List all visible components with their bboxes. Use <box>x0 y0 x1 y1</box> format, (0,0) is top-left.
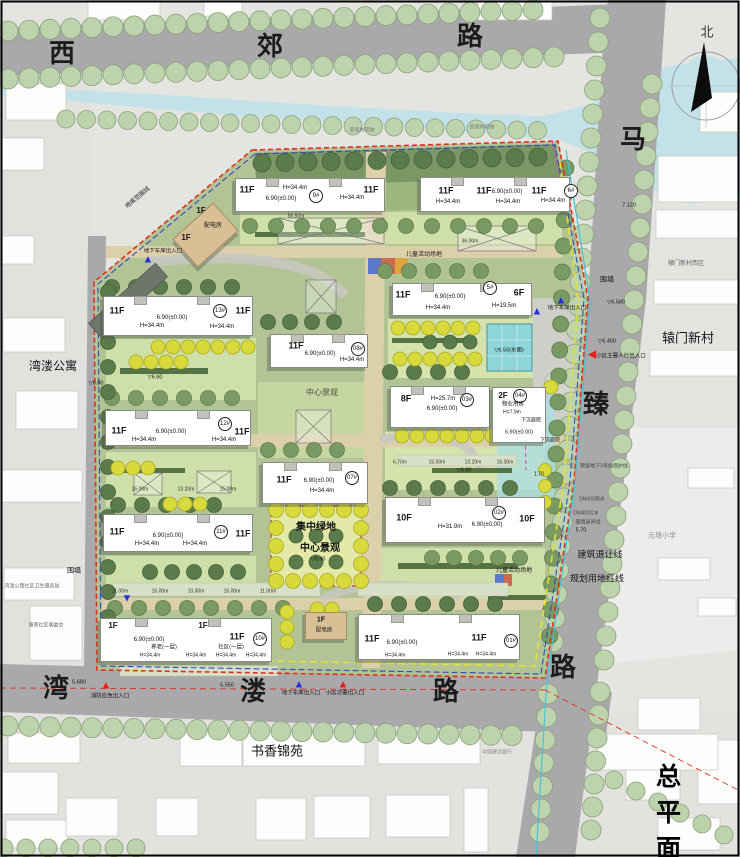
building-label: H=34.4m <box>340 195 365 201</box>
building-label: 08# <box>351 342 365 356</box>
building-label: 11F <box>531 187 546 196</box>
building-label: 13# <box>213 304 227 318</box>
road-name-char: 臻 <box>583 391 609 417</box>
building-number-badge: 03# <box>460 393 474 407</box>
building-label: H=34.4m <box>426 305 451 311</box>
roof-core <box>284 462 297 471</box>
dimension-label: 15.00m <box>497 461 514 466</box>
building-number-badge: 6# <box>564 184 578 198</box>
entrance-marker: ▼ <box>122 594 133 605</box>
map-label: 书香锦苑 <box>251 745 303 758</box>
building-label: H=34.4m <box>476 653 496 658</box>
roof-core <box>514 177 527 186</box>
building-number-badge: 5# <box>483 281 497 295</box>
building-label: H=34.4m <box>496 199 521 205</box>
map-label: 辕门新村 <box>662 332 714 345</box>
building-number-badge: 02# <box>492 506 506 520</box>
map-label: 景观构筑物 <box>469 126 494 131</box>
map-label: 塘南社区居委会 <box>28 624 63 629</box>
building-label: 5# <box>483 281 497 295</box>
building-label: H=25.7m <box>431 396 456 402</box>
map-label: 地库范围线 <box>125 186 152 210</box>
building-label: 12# <box>218 417 232 431</box>
road-name-char: 马 <box>620 126 646 152</box>
dimension-label: 15.00m <box>132 488 149 493</box>
elevation-label: ▽6.400 <box>598 339 616 345</box>
dimension-label: 36.00m <box>462 240 479 245</box>
building-label: H=34.4m <box>140 654 160 659</box>
map-label: 建筑退让线 <box>577 551 622 560</box>
entrance-label: 小区主要人行出入口 <box>596 354 646 360</box>
road-name-char: 湾 <box>43 675 69 701</box>
building-label: H=34.4m <box>186 654 206 659</box>
building-number-badge: 9# <box>309 189 323 203</box>
road-name-char: 溇 <box>240 678 266 704</box>
map-label: 1F <box>181 234 190 242</box>
building-label: 8F <box>401 395 412 404</box>
drawing-title: 总平面图 <box>656 757 712 857</box>
building-label: 1F <box>196 207 205 215</box>
entrance-marker: ◀ <box>588 350 596 361</box>
building-number-badge: 13# <box>213 304 227 318</box>
building-number-badge: 12# <box>218 417 232 431</box>
building-label: 11# <box>214 525 228 539</box>
roof-core <box>135 618 148 627</box>
building-label: 11F <box>235 307 250 316</box>
entrance-label: 地下车库出入口 <box>548 306 587 312</box>
building-label: 11F <box>364 635 379 644</box>
roof-core <box>391 614 404 623</box>
building-label: 6.90(±0.00) <box>266 196 297 202</box>
elevation-label: ▽6.60 <box>148 375 163 381</box>
map-label: 中心景观 <box>306 389 338 397</box>
map-label: 围墙 <box>600 277 614 284</box>
building-number-badge: 08# <box>351 342 365 356</box>
building-label: 6.90(±0.00) <box>492 189 523 195</box>
roof-core <box>208 618 221 627</box>
building-label: 6.90(±0.00) <box>505 430 533 436</box>
building-label: 11F <box>363 186 378 195</box>
building-label: 01# <box>504 634 518 648</box>
elevation-label: ▽6.60 <box>311 557 326 563</box>
building-label: 10F <box>519 515 535 524</box>
building-label: 1.70 <box>534 473 544 478</box>
map-label: 辕门新村西区 <box>668 261 704 267</box>
map-label: 中国建设银行 <box>482 751 512 756</box>
building-label: 11F <box>476 187 491 196</box>
roof-core <box>485 497 498 506</box>
building-label: 社区(一层) <box>218 645 244 651</box>
building-label: H=34.4m <box>216 654 236 659</box>
building-label: 6# <box>564 184 578 198</box>
dimension-label: 10.30m <box>188 590 205 595</box>
elevation-label: ▽6.50(水面) <box>494 348 524 354</box>
building-label: H=34.4m <box>132 437 157 443</box>
map-label: DN400雨水 <box>579 498 605 503</box>
building-label: 11F <box>229 633 244 642</box>
roof-core <box>332 334 345 343</box>
entrance-label: 小区次要出入口 <box>326 691 365 697</box>
building-label: H=31.9m <box>438 524 463 530</box>
elevation-label: ▽6.580 <box>607 300 625 306</box>
building-label: 6.90(±0.00) <box>305 351 336 357</box>
building-label: H=34.4m <box>246 654 266 659</box>
building-label: 6.90(±0.00) <box>427 406 458 412</box>
roof-core <box>411 386 424 395</box>
map-label: DN400污水 <box>573 512 599 517</box>
map-label: 湾溇公寓社区卫生服务站 <box>4 585 59 590</box>
building-label: 11F <box>276 476 291 485</box>
building-label: H=34.4m <box>140 323 165 329</box>
building-label: 6.90(±0.00) <box>387 640 418 646</box>
map-label: 湾溇公寓 <box>29 360 77 372</box>
entrance-marker: ▲ <box>338 680 349 691</box>
building-label: 11F <box>239 186 254 195</box>
roof-core <box>459 614 472 623</box>
elevation-label: 5.70 <box>576 528 587 534</box>
building-label: 03# <box>460 393 474 407</box>
dimension-label: 11.00m <box>260 590 276 595</box>
map-label: 元培小学 <box>648 533 676 540</box>
map-label: 围墙退界线 <box>575 521 600 526</box>
entrance-marker: ▲ <box>532 307 543 318</box>
building-label: 配电房 <box>316 628 333 634</box>
entrance-marker: ▲ <box>294 680 305 691</box>
roof-core <box>266 178 279 187</box>
building-label: 下沉庭院 <box>540 439 560 444</box>
north-label: 北 <box>700 22 713 41</box>
map-label: 围墙 <box>67 568 81 575</box>
dimension-label: 15.00m <box>224 590 241 595</box>
building-label: 6.90(±0.00) <box>134 637 165 643</box>
map-label: 预留地下3号线保护线 <box>580 465 628 470</box>
elevation-label: ▽6.60 <box>457 468 472 474</box>
building-label: 6.90(±0.00) <box>304 478 335 484</box>
building-label: 1F <box>108 622 117 630</box>
building-label: 11F <box>395 291 410 300</box>
building-label: H=34.4m <box>210 324 235 330</box>
building-label: 物业用房 <box>502 402 524 408</box>
building-label: H=34.4m <box>340 357 365 363</box>
road-name-char: 路 <box>550 654 576 680</box>
building-label: 11F <box>111 427 126 436</box>
building-number-badge: 11# <box>214 525 228 539</box>
building-label: 1F <box>198 622 207 630</box>
building-label: 6F <box>514 289 525 298</box>
building-label: 11F <box>288 342 303 351</box>
building-label: H=34.4m <box>283 185 308 191</box>
roof-core <box>197 514 210 523</box>
annotation-layer: 西郊路马臻路湾溇路11F6.90(±0.00)H=34.4m9#H=34.4m1… <box>0 0 740 857</box>
building-label: H=34.4m <box>448 653 468 658</box>
road-name-char: 西 <box>49 40 75 66</box>
dimension-label: 6.70m <box>393 461 407 466</box>
building-number-badge: 01# <box>504 634 518 648</box>
building-substation-s <box>305 612 347 640</box>
elevation-label: 7.120 <box>622 203 636 209</box>
building-label: 2F <box>498 392 507 400</box>
building-label: 6.90(±0.00) <box>157 315 188 321</box>
building-label: H=7.9m <box>503 411 521 416</box>
roof-core <box>197 296 210 305</box>
entrance-marker: ▲ <box>101 681 112 692</box>
building-label: 6.90(±0.00) <box>153 533 184 539</box>
building-label: 1F <box>317 617 325 624</box>
building-label: 11F <box>234 428 249 437</box>
building-label: H=34.4m <box>541 198 566 204</box>
dimension-label: 15.00m <box>220 488 237 493</box>
building-label: 9# <box>309 189 323 203</box>
elevation-label: ▽6.00 <box>89 381 104 387</box>
building-label: 11F <box>235 530 250 539</box>
building-label: 11F <box>109 307 124 316</box>
roof-core <box>134 514 147 523</box>
building-label: H=34.4m <box>183 541 208 547</box>
road-name-char: 郊 <box>257 33 283 59</box>
road-name-char: 路 <box>457 23 483 49</box>
road-name-char: 路 <box>433 678 459 704</box>
elevation-label: 5.680 <box>72 680 86 686</box>
elevation-label: 5.550 <box>220 683 234 689</box>
dimension-label: 56.50m <box>288 215 305 220</box>
roof-core <box>329 462 342 471</box>
building-label: 配电房 <box>204 223 222 229</box>
entrance-label: 消防应急出入口 <box>91 694 130 700</box>
map-label: 儿童活动场地 <box>496 568 532 574</box>
building-label: 养老(一层) <box>151 645 177 651</box>
building-label: 6.90(±0.00) <box>472 522 503 528</box>
building-label: 11F <box>109 528 124 537</box>
building-label: 02# <box>492 506 506 520</box>
dimension-label: 13.20m <box>178 488 195 493</box>
building-number-badge: 10# <box>253 632 267 646</box>
roof-core <box>418 497 431 506</box>
map-label: 中心景观 <box>300 544 340 554</box>
building-label: 11F <box>471 634 486 643</box>
building-label: H=19.5m <box>492 303 517 309</box>
dimension-label: 13.20m <box>465 461 482 466</box>
roof-core <box>329 178 342 187</box>
map-label: 集中绿地 <box>296 523 336 533</box>
entrance-marker: ▲ <box>143 255 154 266</box>
roof-core <box>135 410 148 419</box>
building-label: H=34.4m <box>310 488 335 494</box>
building-label: H=34.4m <box>385 654 405 659</box>
roof-core <box>197 410 210 419</box>
map-label: 规划用地红线 <box>570 575 624 584</box>
site-plan-sheet: 西郊路马臻路湾溇路11F6.90(±0.00)H=34.4m9#H=34.4m1… <box>0 0 740 857</box>
building-label: 下沉庭院 <box>521 419 541 424</box>
entrance-marker: ▲ <box>556 296 567 307</box>
building-label: H=34.4m <box>212 437 237 443</box>
dimension-label: 15.00m <box>429 461 446 466</box>
building-label: 6.90(±0.00) <box>435 294 466 300</box>
roof-core <box>134 296 147 305</box>
building-label: 10# <box>253 632 267 646</box>
map-label: 儿童活动场地 <box>406 252 442 258</box>
building-label: 11F <box>438 187 453 196</box>
building-label: 6.90(±0.00) <box>156 429 187 435</box>
building-label: 07# <box>345 471 359 485</box>
building-label: H=34.4m <box>135 541 160 547</box>
building-label: 10F <box>396 514 412 523</box>
map-label: 景观构筑物 <box>349 129 374 134</box>
building-number-badge: 07# <box>345 471 359 485</box>
entrance-label: 地下车库出入口 <box>282 691 321 697</box>
dimension-label: 15.00m <box>152 590 169 595</box>
building-label: H=34.4m <box>436 199 461 205</box>
roof-core <box>421 283 434 292</box>
